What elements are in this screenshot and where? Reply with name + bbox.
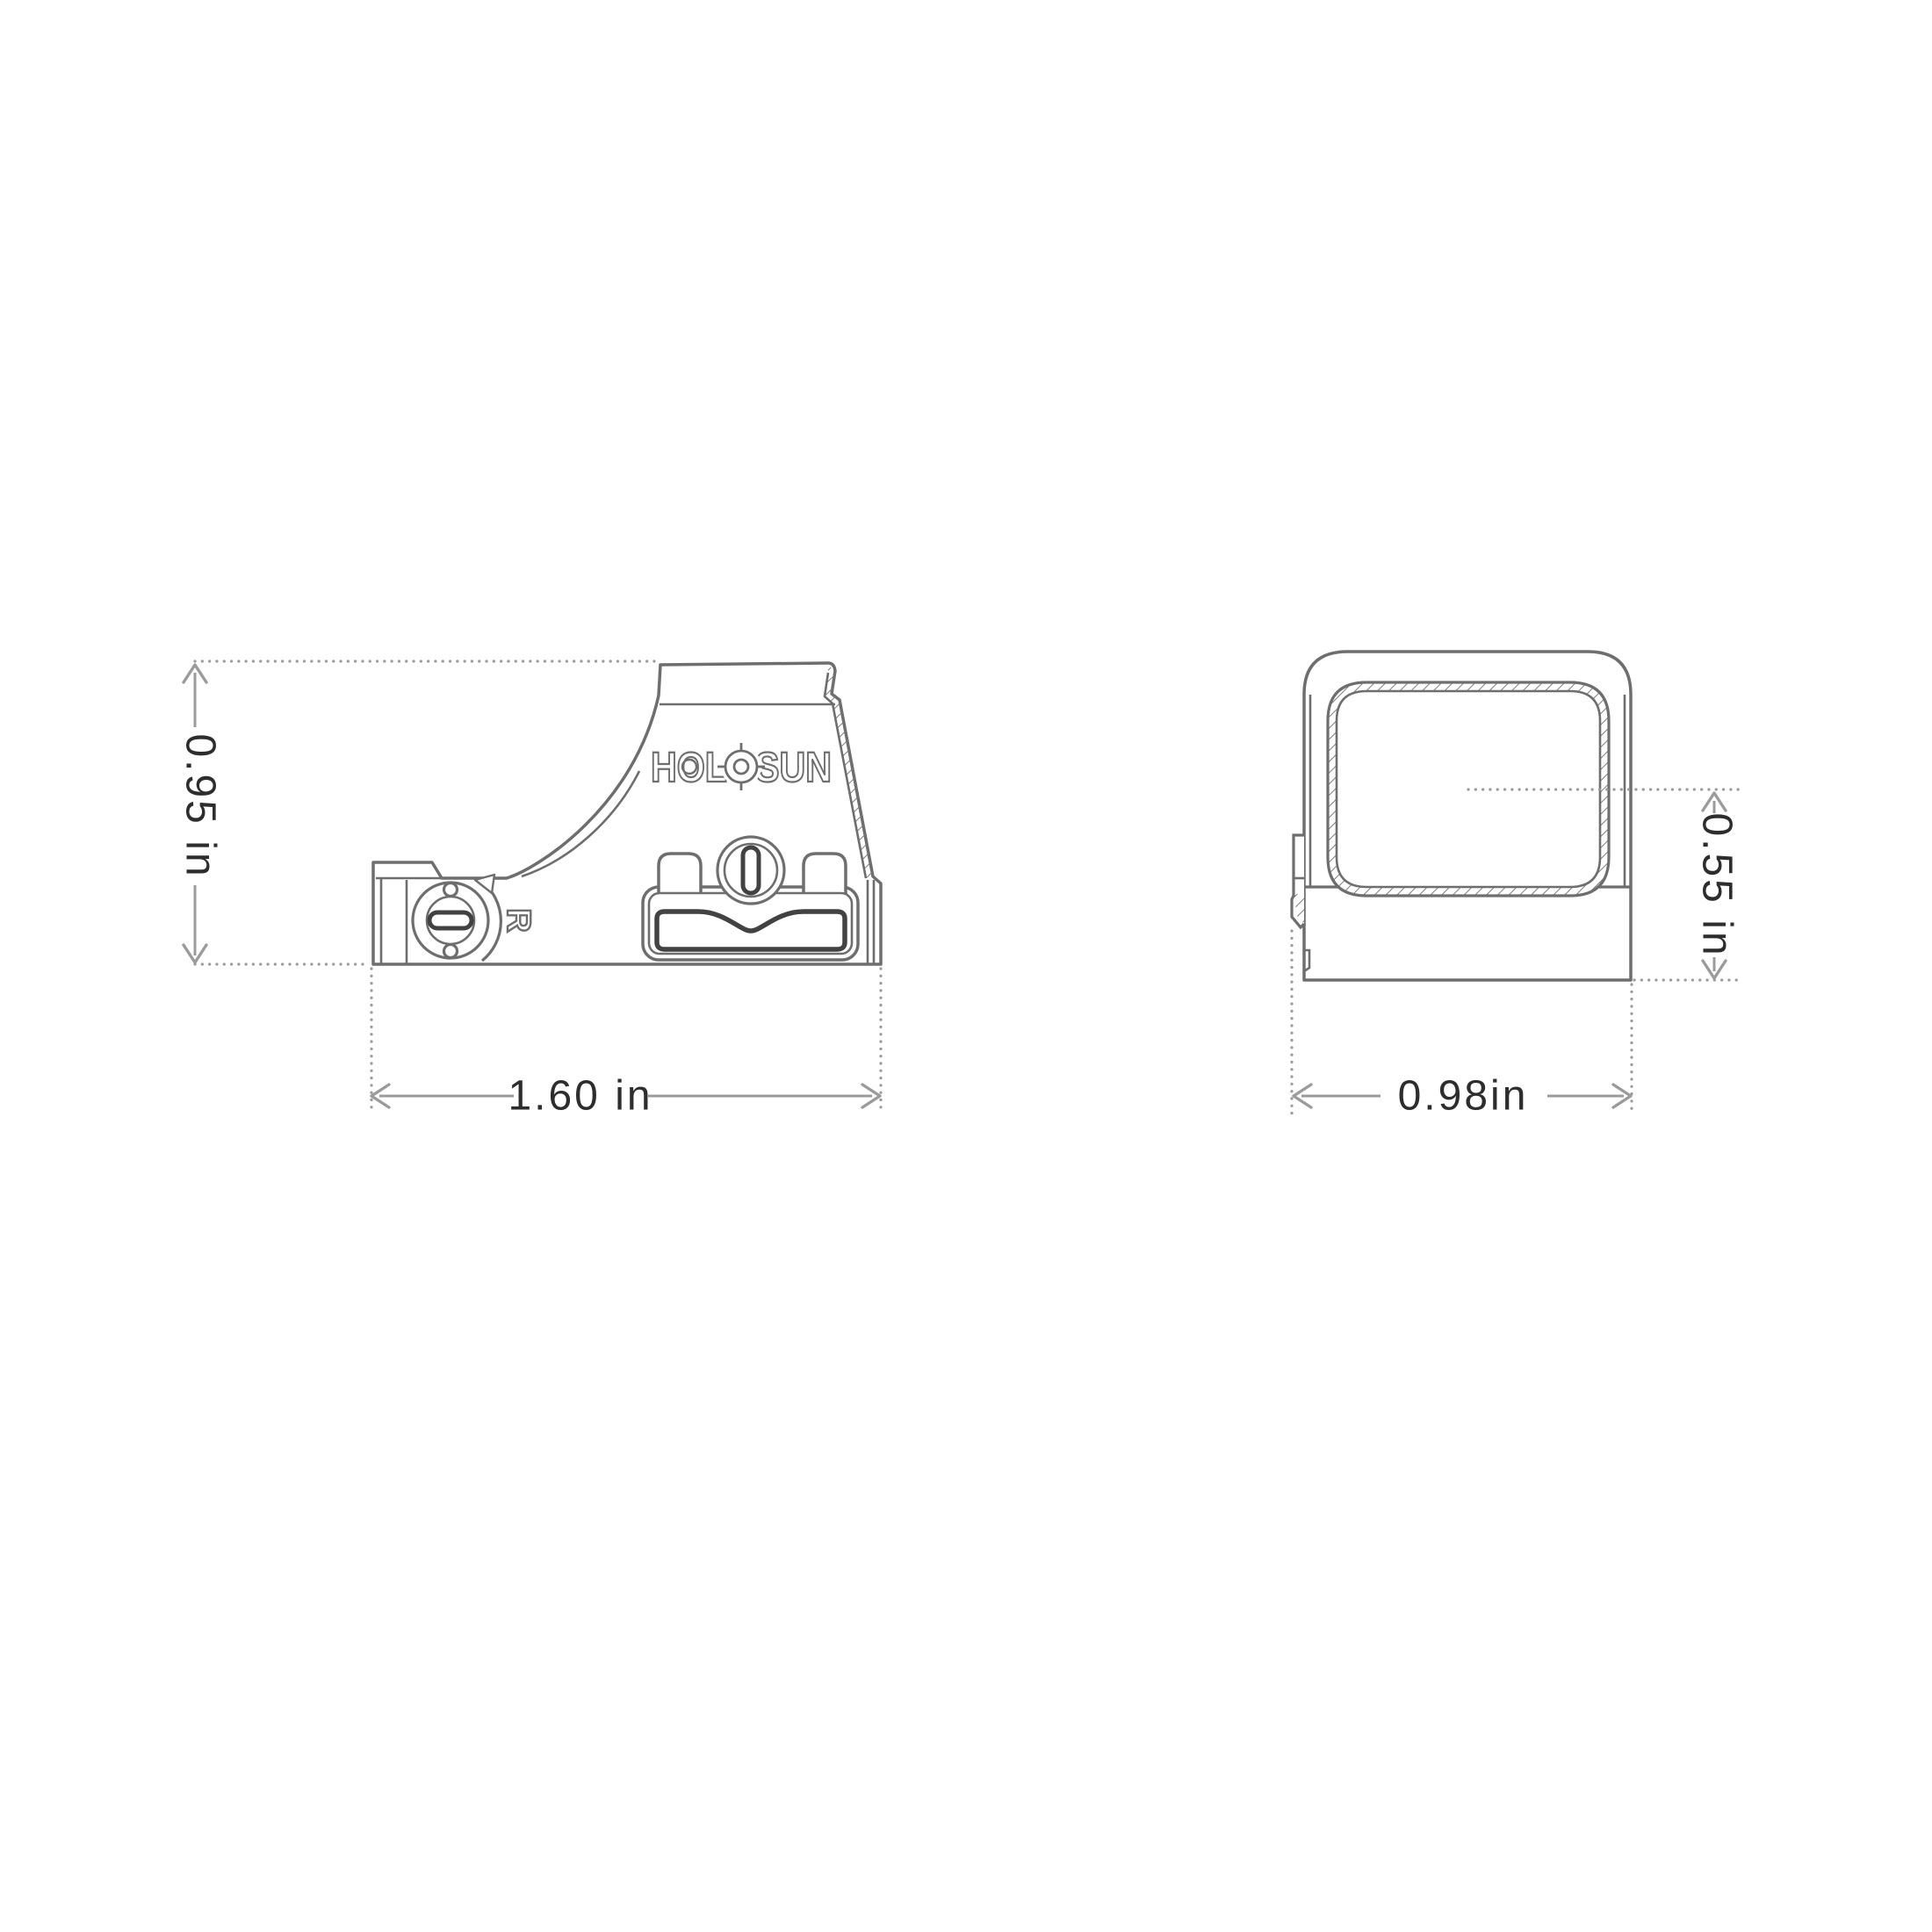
brand-logo: HOLOSUN — [651, 743, 832, 791]
windage-slot — [429, 912, 472, 928]
center-height-dim-label: 0.55 in — [1694, 812, 1741, 957]
mount-clamp — [643, 837, 858, 960]
clamp-left-ear — [659, 854, 701, 894]
logo-o-erase — [721, 746, 761, 787]
length-dim-label: 1.60 in — [508, 1073, 652, 1120]
windage-direction-marking: R — [500, 908, 537, 932]
side-view: R HOLOSUN — [177, 661, 882, 1120]
clamp-right-ear — [804, 854, 846, 894]
width-dim-label: 0.98in — [1398, 1073, 1529, 1120]
height-dim-label: 0.95 in — [177, 733, 224, 878]
windage-screw-bottom — [444, 945, 458, 958]
drawing-canvas: R HOLOSUN — [0, 0, 1932, 1932]
elevation-slot — [743, 847, 759, 893]
windage-screw-top — [444, 883, 458, 897]
front-view: 0.55 in 0.98in — [1292, 652, 1743, 1120]
dimension-drawing: R HOLOSUN — [0, 0, 1932, 1932]
